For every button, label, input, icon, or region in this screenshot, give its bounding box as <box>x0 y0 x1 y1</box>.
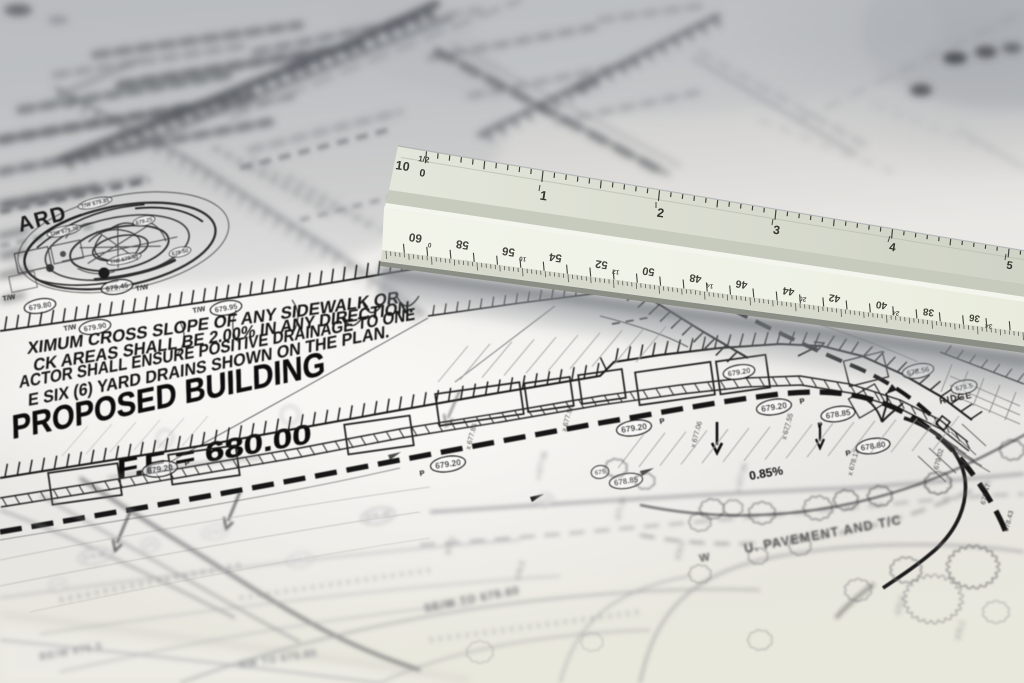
svg-text:60: 60 <box>407 230 423 246</box>
svg-text:34: 34 <box>984 321 993 329</box>
svg-text:50: 50 <box>642 264 656 278</box>
svg-text:20: 20 <box>798 294 807 302</box>
svg-text:10: 10 <box>395 158 411 174</box>
svg-text:14: 14 <box>705 281 714 289</box>
svg-text:46: 46 <box>735 277 749 291</box>
svg-text:24: 24 <box>891 308 900 316</box>
svg-text:48: 48 <box>689 271 703 285</box>
svg-text:36: 36 <box>968 311 981 324</box>
svg-text:44: 44 <box>782 284 796 298</box>
svg-text:58: 58 <box>455 237 470 252</box>
svg-text:1/2: 1/2 <box>418 154 431 165</box>
svg-text:42: 42 <box>828 291 841 304</box>
svg-text:52: 52 <box>595 257 609 271</box>
svg-text:38: 38 <box>922 305 935 318</box>
svg-text:54: 54 <box>548 250 563 264</box>
svg-text:40: 40 <box>875 298 888 311</box>
svg-text:12: 12 <box>611 267 620 275</box>
svg-text:56: 56 <box>501 244 515 258</box>
svg-text:10: 10 <box>518 254 527 262</box>
